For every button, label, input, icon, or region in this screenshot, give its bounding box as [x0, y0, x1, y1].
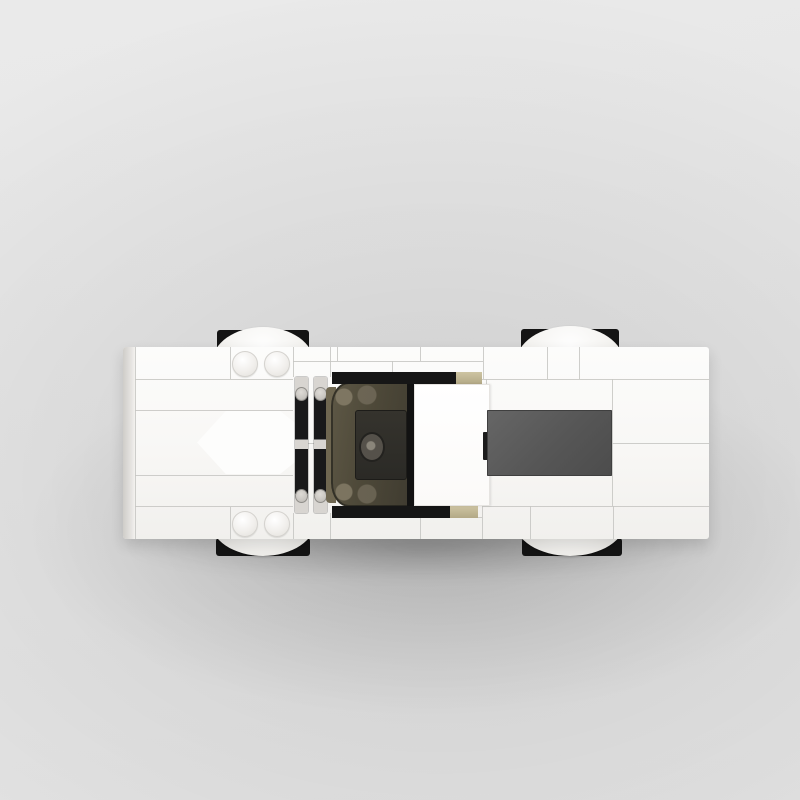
panel-seam [135, 379, 293, 380]
panel-seam [613, 506, 614, 539]
panel-seam [579, 347, 580, 379]
panel-seam [337, 347, 338, 361]
stud [264, 351, 290, 377]
panel-seam [612, 443, 709, 444]
grille-column [295, 377, 308, 513]
panel-seam [392, 361, 393, 372]
rear-window-panel [487, 410, 612, 476]
panel-seam [135, 410, 293, 411]
panel-seam [135, 506, 293, 507]
panel-seam [530, 506, 531, 539]
panel-seam [482, 379, 709, 380]
stud [232, 351, 258, 377]
grille-stud [295, 387, 308, 401]
bottom-trim-black [332, 506, 450, 518]
top-trim-tan [456, 372, 482, 384]
panel-seam [135, 475, 293, 476]
windshield-canopy [331, 382, 411, 507]
panel-seam [482, 506, 483, 539]
stud [232, 511, 258, 537]
panel-seam [293, 513, 294, 539]
panel-seam [230, 507, 231, 539]
panel-seam [483, 347, 484, 379]
top-trim-black [332, 372, 456, 384]
grille-stud [295, 489, 308, 503]
panel-seam [420, 517, 421, 539]
panel-seam [135, 347, 136, 539]
bottom-trim-tan [450, 506, 478, 518]
roof-panel [414, 384, 490, 506]
panel-seam [293, 347, 294, 377]
panel-seam [482, 506, 709, 507]
stud [264, 511, 290, 537]
panel-seam [330, 347, 331, 377]
panel-seam [612, 379, 613, 506]
panel-seam [230, 347, 231, 379]
studio-scene [0, 0, 800, 800]
steering-wheel [359, 432, 385, 462]
panel-seam [547, 347, 548, 379]
front-bumper-edge [123, 347, 135, 539]
panel-seam [420, 347, 421, 361]
panel-seam [293, 361, 483, 362]
panel-seam [330, 513, 331, 539]
